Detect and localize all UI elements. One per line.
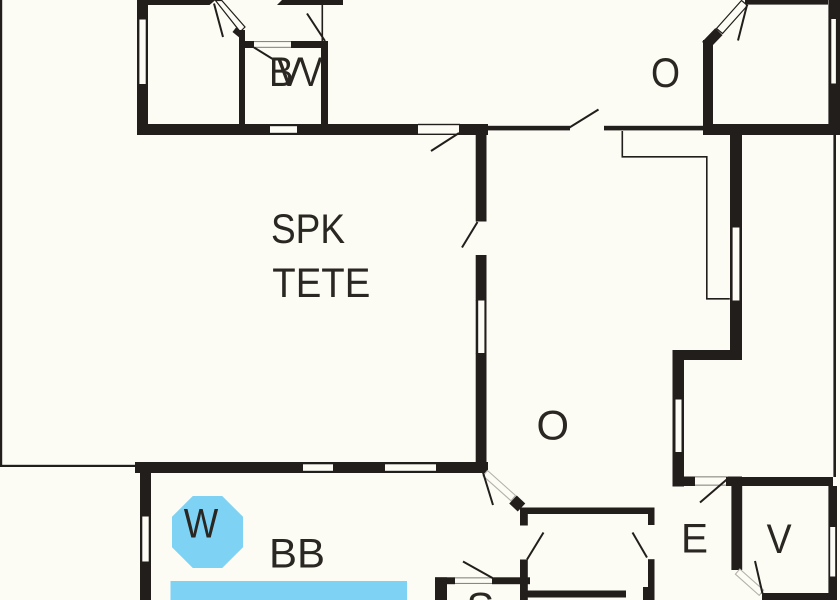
svg-text:TETE: TETE	[272, 259, 370, 306]
svg-text:V: V	[767, 515, 792, 562]
svg-text:O: O	[651, 49, 680, 96]
svg-text:V: V	[299, 48, 323, 95]
svg-text:S: S	[467, 584, 495, 600]
svg-text:E: E	[681, 514, 708, 561]
svg-text:W: W	[184, 500, 219, 547]
svg-text:O: O	[537, 402, 570, 449]
svg-text:SPK: SPK	[271, 205, 345, 252]
svg-text:BB: BB	[269, 530, 325, 577]
